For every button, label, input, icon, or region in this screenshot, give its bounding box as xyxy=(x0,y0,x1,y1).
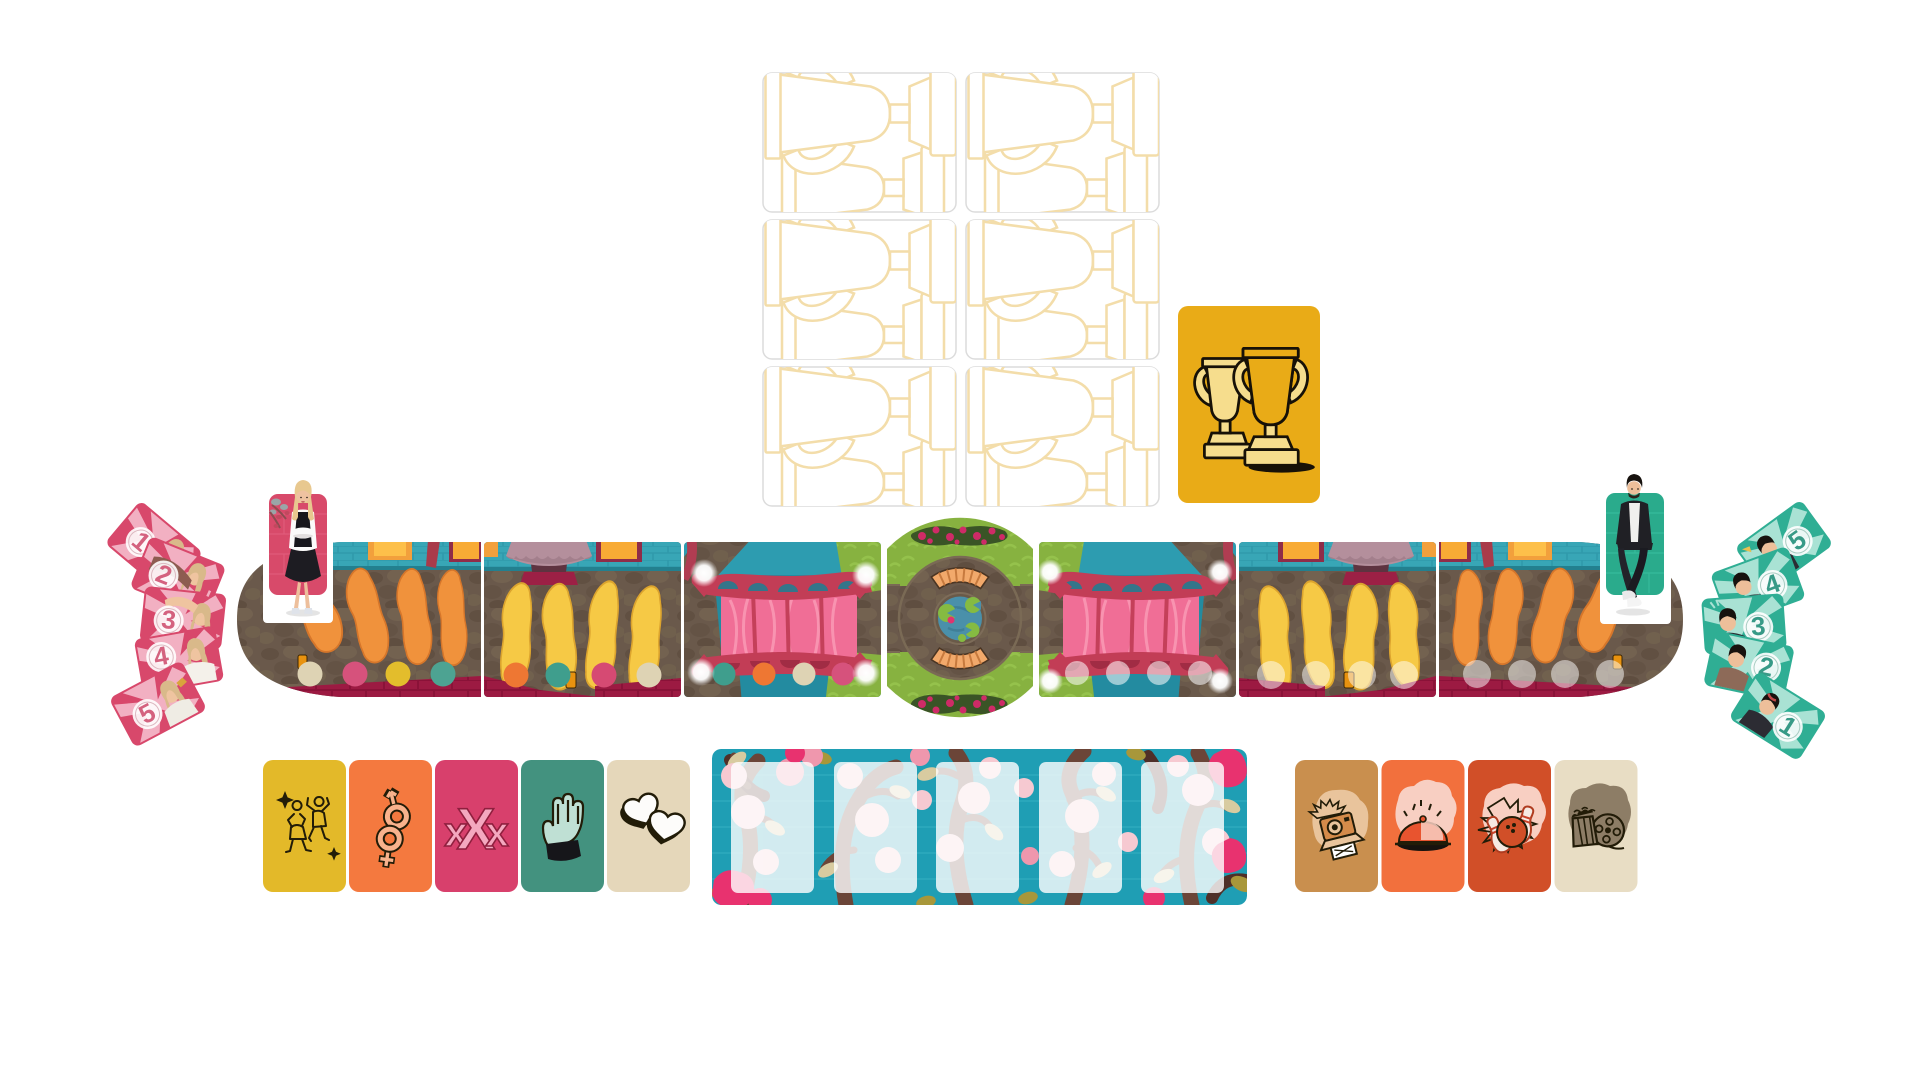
svg-text:3: 3 xyxy=(1750,611,1767,642)
svg-text:x: x xyxy=(485,808,509,855)
